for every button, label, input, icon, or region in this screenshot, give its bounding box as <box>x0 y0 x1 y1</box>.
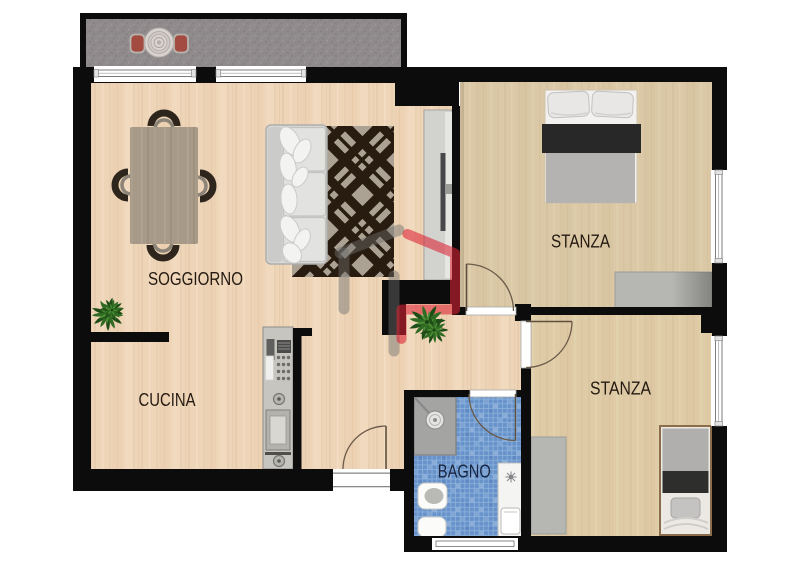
svg-text:CUCINA: CUCINA <box>139 389 197 410</box>
svg-text:BAGNO: BAGNO <box>438 461 491 482</box>
svg-text:SOGGIORNO: SOGGIORNO <box>148 268 243 289</box>
svg-text:STANZA: STANZA <box>551 230 611 251</box>
svg-text:STANZA: STANZA <box>590 378 652 399</box>
